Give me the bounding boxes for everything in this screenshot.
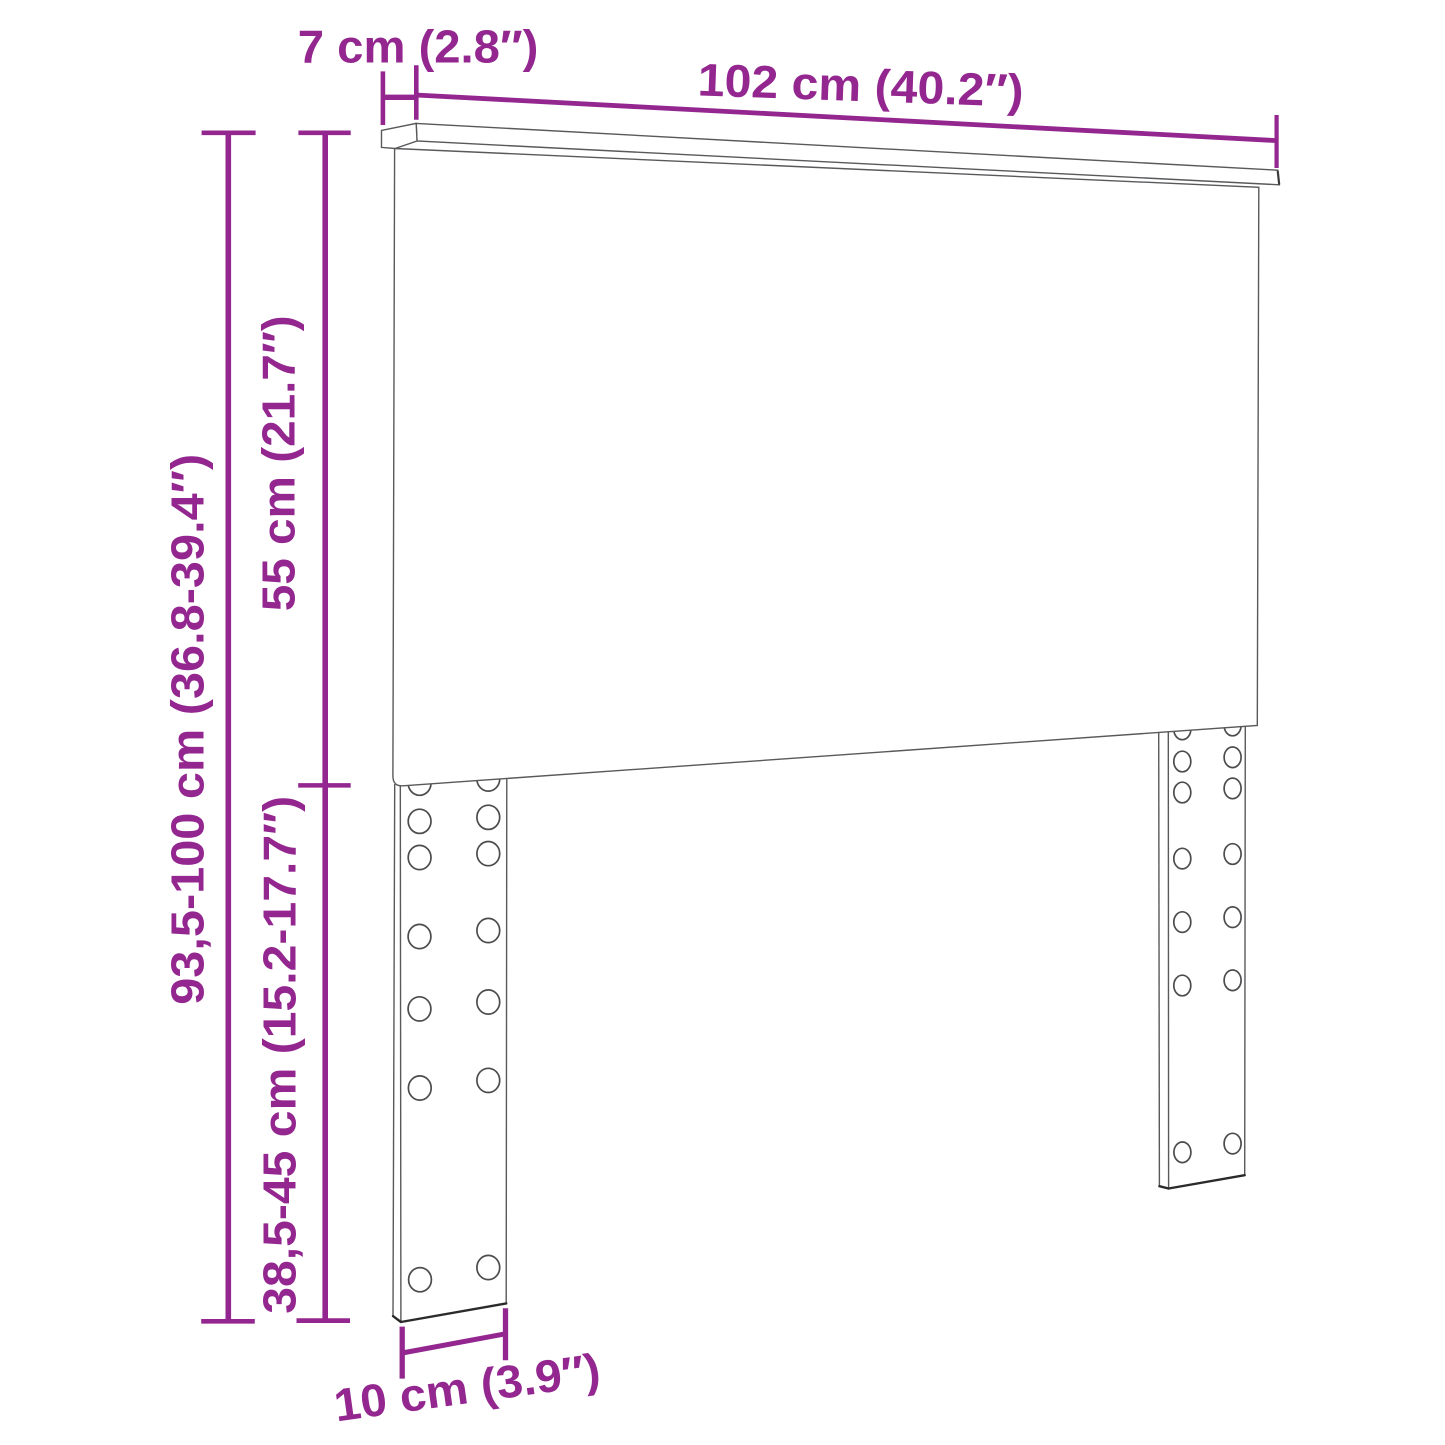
svg-text:38,5-45 cm (15.2-17.7″): 38,5-45 cm (15.2-17.7″): [254, 796, 306, 1314]
svg-text:55 cm (21.7″): 55 cm (21.7″): [253, 315, 305, 611]
svg-text:7 cm (2.8″): 7 cm (2.8″): [298, 20, 539, 72]
svg-text:93,5-100 cm (36.8-39.4″): 93,5-100 cm (36.8-39.4″): [161, 454, 213, 1005]
